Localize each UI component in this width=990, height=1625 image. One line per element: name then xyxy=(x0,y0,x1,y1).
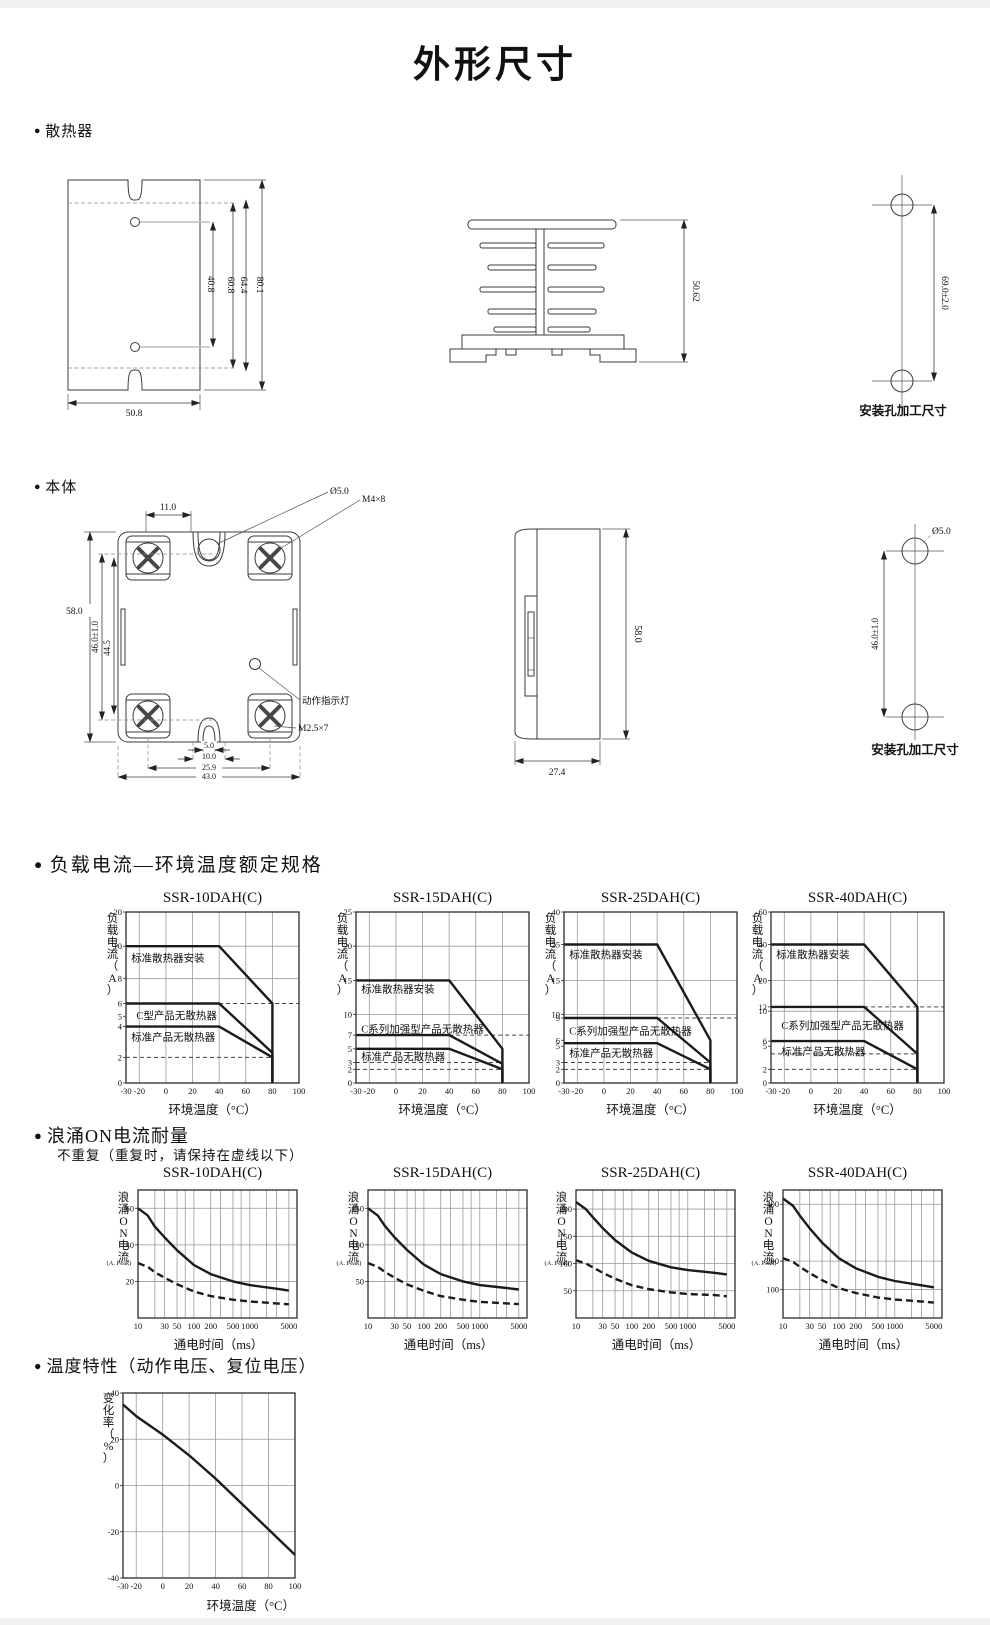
svg-text:60: 60 xyxy=(126,1203,135,1213)
chart-title: SSR-25DAH(C) xyxy=(564,1165,737,1182)
dim-label-44-5: 44.5 xyxy=(102,640,112,656)
surge-chart-cell-ssr25: SSR-25DAH(C) 浪涌ON电流 (A. Peak) 2001501005… xyxy=(528,1160,743,1360)
dim-label-11: 11.0 xyxy=(160,503,177,513)
heatsink-front-drawing: 40.8 60.8 64.4 80.1 50.8 xyxy=(58,163,293,418)
svg-text:15: 15 xyxy=(552,975,561,985)
svg-text:-20: -20 xyxy=(779,1086,790,1096)
svg-text:10: 10 xyxy=(759,1006,768,1016)
svg-text:2: 2 xyxy=(118,1052,122,1062)
dim-label-m2-5x7: M2.5×7 xyxy=(298,724,329,734)
dim-label-50-8: 50.8 xyxy=(126,409,143,418)
svg-text:-20: -20 xyxy=(131,1581,142,1591)
svg-text:200: 200 xyxy=(766,1256,779,1266)
svg-text:20: 20 xyxy=(126,1276,135,1286)
svg-text:50: 50 xyxy=(403,1321,412,1331)
dim-label-10: 10.0 xyxy=(202,752,216,761)
svg-text:5: 5 xyxy=(763,1041,767,1051)
x-axis-label: 通电时间（ms） xyxy=(138,1334,299,1353)
svg-text:8: 8 xyxy=(118,974,122,984)
svg-text:40: 40 xyxy=(860,1086,869,1096)
svg-text:0: 0 xyxy=(602,1086,606,1096)
svg-text:标准散热器安装: 标准散热器安装 xyxy=(361,982,435,995)
load-chart-cell-ssr15: SSR-15DAH(C) 负载电流（A） 2520151075320-30-20… xyxy=(320,885,535,1125)
svg-text:6: 6 xyxy=(118,998,122,1008)
chart-title: SSR-25DAH(C) xyxy=(564,890,737,907)
svg-text:30: 30 xyxy=(390,1321,399,1331)
dim-label-40-8: 40.8 xyxy=(205,276,215,293)
x-axis-label: 通电时间（ms） xyxy=(576,1334,737,1353)
svg-text:100: 100 xyxy=(626,1321,639,1331)
page-top-edge xyxy=(0,0,990,8)
svg-text:500: 500 xyxy=(872,1321,885,1331)
heatsink-profile-drawing: 50.62 xyxy=(448,193,713,383)
load-plot-ssr25: 40251510965320-30-20020406080100标准散热器安装C… xyxy=(528,909,743,1109)
svg-text:标准散热器安装: 标准散热器安装 xyxy=(569,948,643,961)
svg-text:10: 10 xyxy=(114,941,123,951)
svg-text:0: 0 xyxy=(115,1481,119,1491)
svg-text:-20: -20 xyxy=(108,1527,119,1537)
svg-text:60: 60 xyxy=(759,909,768,917)
load-plot-ssr40: 60402012106520-30-20020406080100标准散热器安装C… xyxy=(735,909,950,1109)
svg-text:标准产品无散热器: 标准产品无散热器 xyxy=(131,1030,215,1043)
svg-text:25: 25 xyxy=(344,909,353,917)
section-header-heatsink: 散热器 xyxy=(34,120,93,141)
svg-text:60: 60 xyxy=(680,1086,689,1096)
x-axis-label: 通电时间（ms） xyxy=(783,1334,944,1353)
svg-text:150: 150 xyxy=(351,1203,364,1213)
load-chart-cell-ssr10: SSR-10DAH(C) 负载电流（A） 2010865420-30-20020… xyxy=(90,885,305,1125)
body-side-drawing: 58.0 27.4 xyxy=(478,478,663,778)
svg-text:10: 10 xyxy=(344,1010,353,1020)
dim-label-80-1: 80.1 xyxy=(254,277,264,294)
svg-text:200: 200 xyxy=(559,1204,572,1214)
svg-text:100: 100 xyxy=(351,1240,364,1250)
svg-text:0: 0 xyxy=(164,1086,168,1096)
svg-text:标准产品无散热器: 标准产品无散热器 xyxy=(569,1046,653,1059)
svg-text:500: 500 xyxy=(665,1321,678,1331)
chart-title: SSR-40DAH(C) xyxy=(771,1165,944,1182)
svg-text:40: 40 xyxy=(211,1581,220,1591)
svg-text:80: 80 xyxy=(268,1086,277,1096)
svg-text:30: 30 xyxy=(805,1321,814,1331)
svg-text:60: 60 xyxy=(242,1086,251,1096)
svg-text:50: 50 xyxy=(564,1286,573,1296)
svg-text:10: 10 xyxy=(364,1321,373,1331)
temp-plot: 40200-20-40-30-20020406080100 xyxy=(85,1383,305,1608)
svg-text:1000: 1000 xyxy=(241,1321,258,1331)
svg-text:20: 20 xyxy=(185,1581,194,1591)
svg-text:标准散热器安装: 标准散热器安装 xyxy=(131,952,205,965)
section-header-temp: 温度特性（动作电压、复位电压） xyxy=(34,1352,316,1377)
heatsink-holes-drawing: 69.0±2.0 安装孔加工尺寸 xyxy=(818,163,988,423)
body-front-drawing: 11.0 Ø5.0 M4×8 58.0 46.0±1.0 44.5 动作指示灯 … xyxy=(62,478,407,783)
svg-text:0: 0 xyxy=(809,1086,813,1096)
load-chart-cell-ssr25: SSR-25DAH(C) 负载电流（A） 40251510965320-30-2… xyxy=(528,885,743,1125)
holes-caption: 安装孔加工尺寸 xyxy=(859,403,947,418)
svg-text:500: 500 xyxy=(457,1321,470,1331)
svg-text:-20: -20 xyxy=(572,1086,583,1096)
dim-label-69: 69.0±2.0 xyxy=(939,276,949,310)
svg-text:200: 200 xyxy=(434,1321,447,1331)
dim-label-27-4: 27.4 xyxy=(549,768,566,778)
svg-text:5000: 5000 xyxy=(925,1321,942,1331)
load-chart-cell-ssr40: SSR-40DAH(C) 负载电流（A） 60402012106520-30-2… xyxy=(735,885,950,1125)
x-axis-label: 环境温度（°C） xyxy=(771,1099,944,1118)
svg-text:100: 100 xyxy=(293,1086,305,1096)
svg-text:C系列加强型产品无散热器: C系列加强型产品无散热器 xyxy=(569,1024,692,1037)
dim-label-58: 58.0 xyxy=(66,607,83,617)
dim-label-holes-46: 46.0±1.0 xyxy=(870,618,880,650)
surge-chart-cell-ssr40: SSR-40DAH(C) 浪涌ON电流 (A. Peak) 4002001001… xyxy=(735,1160,950,1360)
svg-text:0: 0 xyxy=(161,1581,165,1591)
svg-text:20: 20 xyxy=(759,975,768,985)
dim-label-hole-dia: Ø5.0 xyxy=(330,487,349,497)
svg-text:200: 200 xyxy=(642,1321,655,1331)
svg-text:5000: 5000 xyxy=(510,1321,527,1331)
svg-text:40: 40 xyxy=(111,1388,120,1398)
surge-chart-cell-ssr10: SSR-10DAH(C) 浪涌ON电流 (A. Peak) 6040201030… xyxy=(90,1160,305,1360)
svg-text:标准产品无散热器: 标准产品无散热器 xyxy=(361,1050,445,1063)
svg-text:-30: -30 xyxy=(558,1086,569,1096)
dim-label-25-9: 25.9 xyxy=(202,763,216,772)
svg-text:200: 200 xyxy=(204,1321,217,1331)
svg-text:1000: 1000 xyxy=(886,1321,903,1331)
svg-text:80: 80 xyxy=(913,1086,922,1096)
svg-text:2: 2 xyxy=(763,1064,767,1074)
svg-text:20: 20 xyxy=(344,941,353,951)
svg-text:5: 5 xyxy=(118,1011,122,1021)
svg-text:20: 20 xyxy=(111,1434,120,1444)
dim-label-46: 46.0±1.0 xyxy=(90,621,100,653)
svg-text:4: 4 xyxy=(118,1022,123,1032)
svg-text:5: 5 xyxy=(556,1041,560,1051)
svg-text:40: 40 xyxy=(552,909,561,917)
chart-title: SSR-15DAH(C) xyxy=(356,890,529,907)
dim-label-64-4: 64.4 xyxy=(238,277,248,294)
svg-text:-30: -30 xyxy=(117,1581,128,1591)
svg-text:60: 60 xyxy=(238,1581,247,1591)
x-axis-label: 通电时间（ms） xyxy=(368,1334,529,1353)
svg-text:60: 60 xyxy=(472,1086,481,1096)
chart-title: SSR-40DAH(C) xyxy=(771,890,944,907)
svg-text:5000: 5000 xyxy=(718,1321,735,1331)
svg-text:50: 50 xyxy=(356,1276,365,1286)
svg-text:1000: 1000 xyxy=(471,1321,488,1331)
svg-text:30: 30 xyxy=(598,1321,607,1331)
svg-text:5000: 5000 xyxy=(280,1321,297,1331)
svg-text:100: 100 xyxy=(289,1581,302,1591)
svg-text:-20: -20 xyxy=(134,1086,145,1096)
svg-text:200: 200 xyxy=(849,1321,862,1331)
svg-text:100: 100 xyxy=(766,1285,779,1295)
dim-label-holes-dia: Ø5.0 xyxy=(932,527,951,537)
svg-text:100: 100 xyxy=(559,1259,572,1269)
svg-text:50: 50 xyxy=(173,1321,182,1331)
dim-label-43: 43.0 xyxy=(202,772,216,781)
svg-text:-30: -30 xyxy=(120,1086,131,1096)
svg-text:50: 50 xyxy=(611,1321,620,1331)
svg-text:-30: -30 xyxy=(765,1086,776,1096)
svg-text:15: 15 xyxy=(344,975,353,985)
dim-label-60-8: 60.8 xyxy=(225,277,235,294)
dim-label-side-58: 58.0 xyxy=(632,625,643,643)
svg-text:1000: 1000 xyxy=(679,1321,696,1331)
svg-text:C系列加强型产品无散热器: C系列加强型产品无散热器 xyxy=(781,1019,904,1032)
body-holes-caption: 安装孔加工尺寸 xyxy=(871,742,959,757)
svg-text:40: 40 xyxy=(215,1086,224,1096)
svg-text:7: 7 xyxy=(348,1030,352,1040)
svg-text:80: 80 xyxy=(706,1086,715,1096)
surge-chart-cell-ssr15: SSR-15DAH(C) 浪涌ON电流 (A. Peak) 1501005010… xyxy=(320,1160,535,1360)
svg-text:-30: -30 xyxy=(350,1086,361,1096)
x-axis-label: 环境温度（°C） xyxy=(123,1595,295,1614)
svg-text:20: 20 xyxy=(114,909,123,917)
svg-text:20: 20 xyxy=(418,1086,427,1096)
svg-text:40: 40 xyxy=(126,1240,135,1250)
load-plot-ssr10: 2010865420-30-20020406080100标准散热器安装C型产品无… xyxy=(90,909,305,1109)
svg-text:100: 100 xyxy=(938,1086,950,1096)
svg-text:2: 2 xyxy=(556,1064,560,1074)
svg-text:50: 50 xyxy=(818,1321,827,1331)
svg-text:0: 0 xyxy=(394,1086,398,1096)
svg-text:40: 40 xyxy=(653,1086,662,1096)
chart-title: SSR-10DAH(C) xyxy=(126,890,299,907)
svg-text:150: 150 xyxy=(559,1231,572,1241)
svg-text:40: 40 xyxy=(759,939,768,949)
svg-text:100: 100 xyxy=(188,1321,201,1331)
svg-text:20: 20 xyxy=(188,1086,197,1096)
svg-text:10: 10 xyxy=(779,1321,788,1331)
chart-title: SSR-15DAH(C) xyxy=(356,1165,529,1182)
led-label: 动作指示灯 xyxy=(302,695,350,707)
svg-text:30: 30 xyxy=(160,1321,169,1331)
svg-text:40: 40 xyxy=(445,1086,454,1096)
svg-text:C型产品无散热器: C型产品无散热器 xyxy=(136,1009,217,1022)
dim-label-5: 5.0 xyxy=(204,741,214,750)
svg-text:25: 25 xyxy=(552,939,561,949)
page-title: 外形尺寸 xyxy=(0,34,990,88)
x-axis-label: 环境温度（°C） xyxy=(564,1099,737,1118)
svg-text:10: 10 xyxy=(572,1321,581,1331)
surge-plot-ssr25: 2001501005010305010020050010005000 xyxy=(528,1187,743,1347)
svg-text:9: 9 xyxy=(556,1013,560,1023)
surge-plot-ssr40: 40020010010305010020050010005000 xyxy=(735,1187,950,1347)
svg-text:100: 100 xyxy=(418,1321,431,1331)
svg-text:100: 100 xyxy=(833,1321,846,1331)
temp-chart-cell: 变化率（%） 40200-20-40-30-20020406080100 环境温… xyxy=(85,1383,305,1623)
svg-text:60: 60 xyxy=(887,1086,896,1096)
svg-text:20: 20 xyxy=(833,1086,842,1096)
svg-text:2: 2 xyxy=(348,1064,352,1074)
chart-title: SSR-10DAH(C) xyxy=(126,1165,299,1182)
svg-text:标准散热器安装: 标准散热器安装 xyxy=(776,948,850,961)
x-axis-label: 环境温度（°C） xyxy=(126,1099,299,1118)
body-holes-drawing: Ø5.0 46.0±1.0 安装孔加工尺寸 xyxy=(818,488,988,763)
svg-text:5: 5 xyxy=(348,1044,352,1054)
svg-text:500: 500 xyxy=(227,1321,240,1331)
svg-text:80: 80 xyxy=(264,1581,273,1591)
dim-label-m4x8: M4×8 xyxy=(362,495,386,505)
svg-text:400: 400 xyxy=(766,1199,779,1209)
x-axis-label: 环境温度（°C） xyxy=(356,1099,529,1118)
surge-plot-ssr10: 60402010305010020050010005000 xyxy=(90,1187,305,1347)
svg-text:80: 80 xyxy=(498,1086,507,1096)
section-header-load: 负载电流—环境温度额定规格 xyxy=(34,850,323,877)
svg-text:-20: -20 xyxy=(364,1086,375,1096)
load-plot-ssr15: 2520151075320-30-20020406080100标准散热器安装C系… xyxy=(320,909,535,1109)
svg-text:10: 10 xyxy=(134,1321,143,1331)
surge-plot-ssr15: 1501005010305010020050010005000 xyxy=(320,1187,535,1347)
dim-label-50-62: 50.62 xyxy=(690,280,700,302)
svg-text:C系列加强型产品无散热器: C系列加强型产品无散热器 xyxy=(361,1023,484,1036)
svg-text:20: 20 xyxy=(626,1086,635,1096)
datasheet-page: 外形尺寸 散热器 40.8 60.8 64.4 80.1 50.8 xyxy=(0,0,990,1625)
svg-text:标准产品无散热器: 标准产品无散热器 xyxy=(781,1045,865,1058)
